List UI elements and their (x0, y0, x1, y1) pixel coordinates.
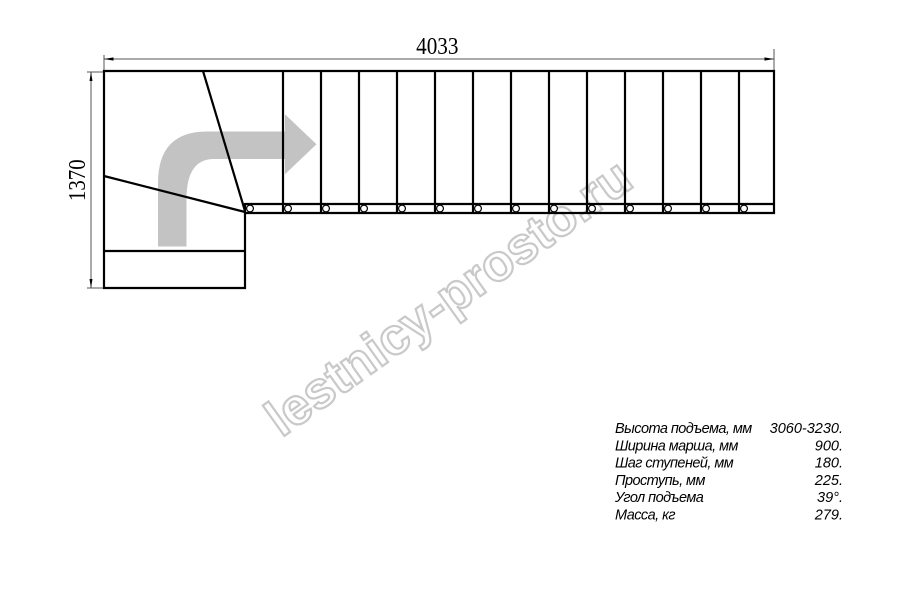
svg-text:4033: 4033 (416, 34, 458, 60)
svg-text:Угол подъема: Угол подъема (614, 490, 704, 506)
svg-text:Масса, кг: Масса, кг (615, 508, 675, 524)
svg-text:39°.: 39°. (817, 490, 843, 506)
svg-text:900.: 900. (815, 439, 843, 455)
svg-text:Высота подъема, мм: Высота подъема, мм (615, 421, 752, 437)
svg-text:279.: 279. (814, 508, 843, 524)
svg-text:225.: 225. (814, 473, 843, 489)
svg-text:180.: 180. (815, 456, 843, 472)
svg-text:1370: 1370 (65, 159, 91, 201)
svg-text:Ширина марша, мм: Ширина марша, мм (615, 439, 739, 455)
svg-text:3060-3230.: 3060-3230. (770, 421, 843, 437)
svg-text:Шаг ступеней, мм: Шаг ступеней, мм (615, 456, 734, 472)
svg-text:Проступь, мм: Проступь, мм (615, 473, 705, 489)
